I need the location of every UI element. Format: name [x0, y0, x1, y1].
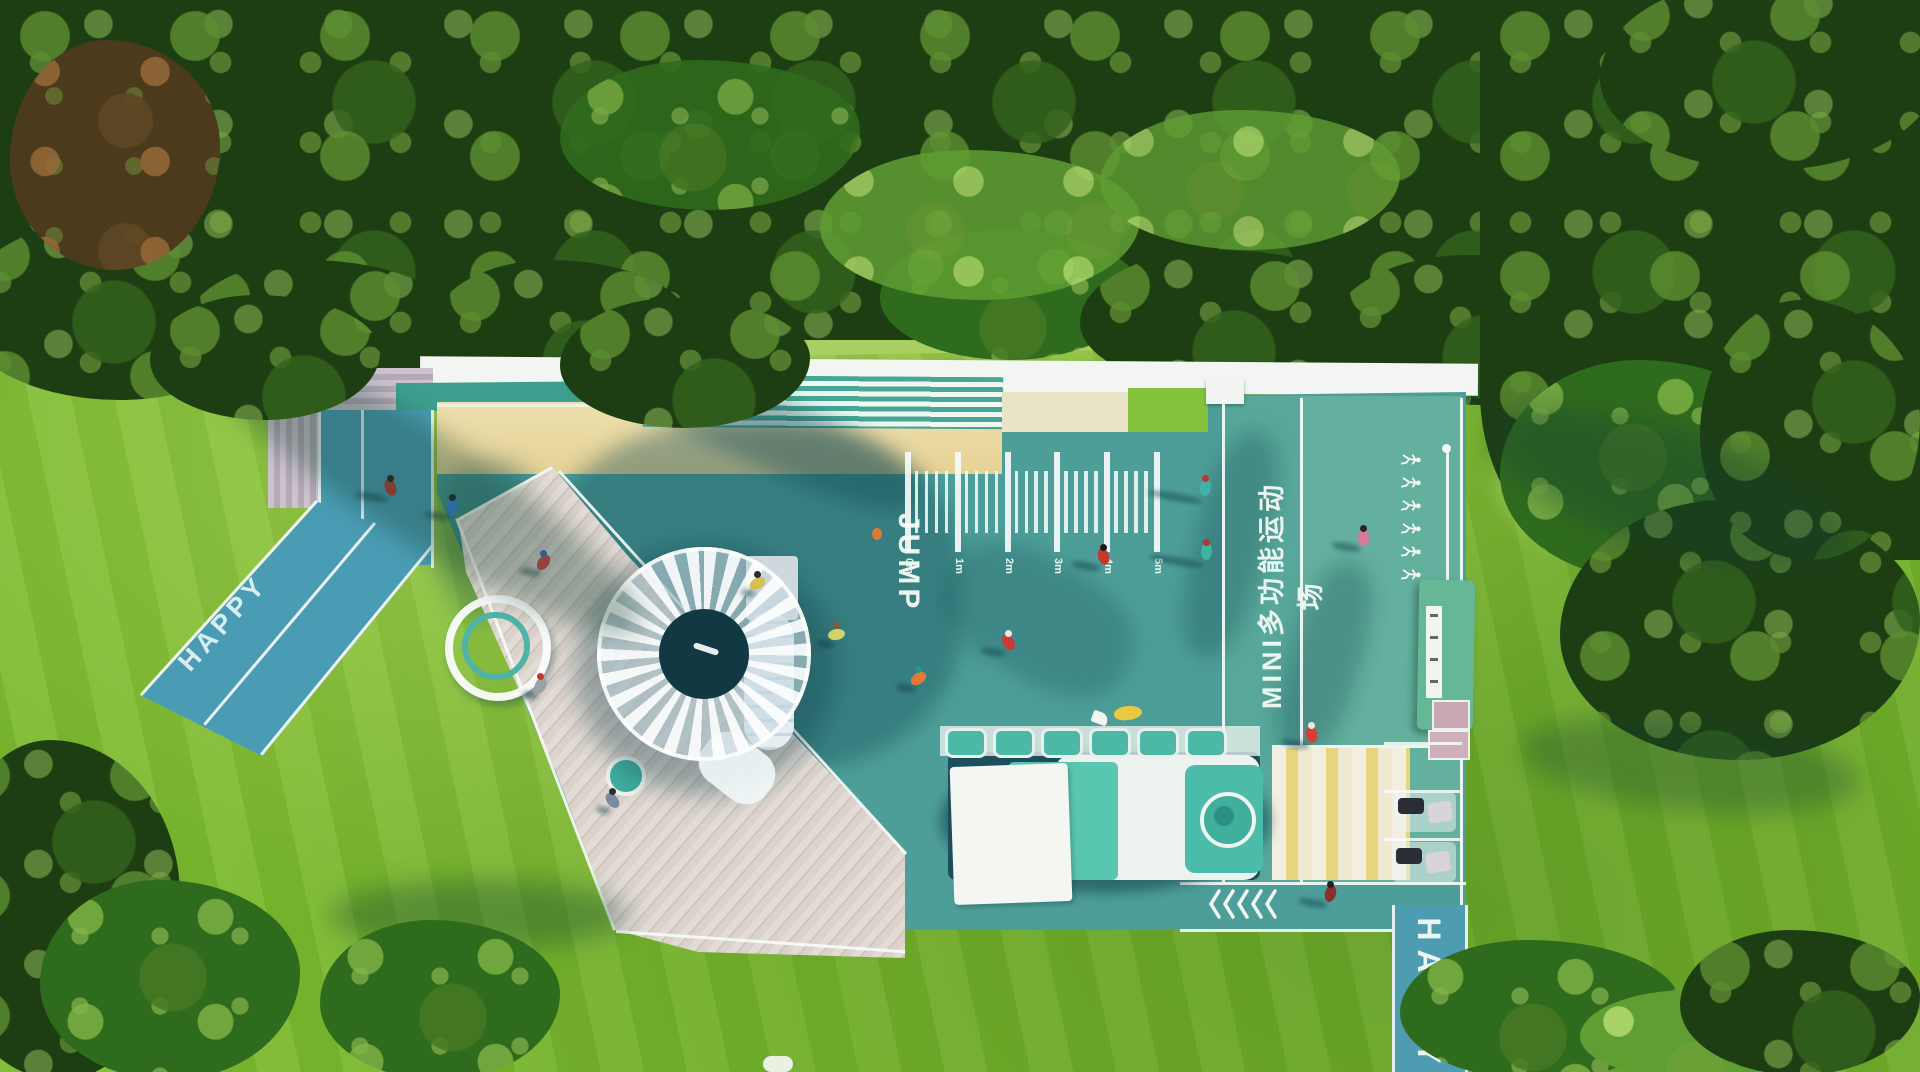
bush-bottom-left [40, 880, 300, 1072]
tree-bottom-center [320, 920, 560, 1072]
aerial-playground-render: HAPPY JUMP 0m1m2m3m4m5m MINI多功能运动场 HAPPY [0, 0, 1920, 1072]
bush-bottom-right [1680, 930, 1920, 1072]
